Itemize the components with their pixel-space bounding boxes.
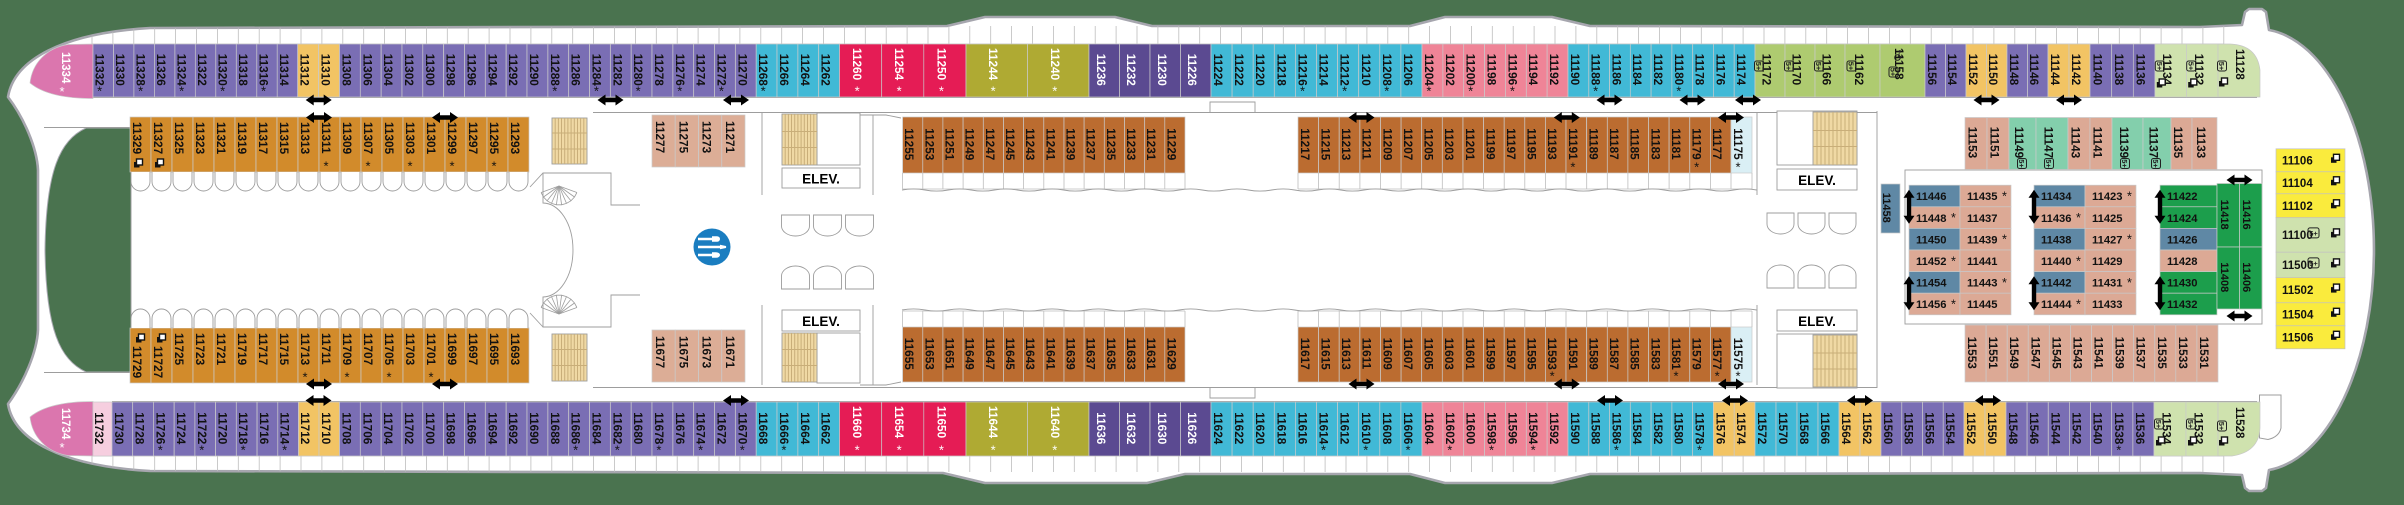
svg-text:11193: 11193 [1545,128,1559,160]
svg-text:11610: 11610 [1359,412,1373,445]
svg-text:11613: 11613 [1339,338,1353,371]
svg-text:*: * [1697,443,1702,458]
svg-text:11437: 11437 [1967,213,1998,225]
svg-text:11630: 11630 [1155,412,1169,445]
svg-text:11544: 11544 [2048,412,2062,445]
svg-text:11536: 11536 [2133,412,2147,445]
svg-text:11728: 11728 [133,412,147,445]
svg-text:11547: 11547 [2028,337,2042,370]
svg-text:5+: 5+ [2044,159,2053,168]
svg-text:11611: 11611 [1360,338,1374,370]
svg-text:*: * [1673,369,1678,384]
svg-text:11197: 11197 [1504,128,1518,160]
svg-text:11579: 11579 [1690,338,1704,371]
svg-text:11298: 11298 [444,54,458,87]
svg-text:5+: 5+ [2154,420,2163,429]
svg-text:11699: 11699 [445,333,459,366]
svg-text:5+: 5+ [2309,259,2318,268]
svg-text:11590: 11590 [1568,412,1582,445]
svg-text:11678: 11678 [652,412,666,445]
svg-text:*: * [897,84,902,99]
svg-text:11697: 11697 [466,333,480,366]
svg-text:11604: 11604 [1422,412,1436,445]
svg-text:11245: 11245 [1003,128,1017,161]
svg-text:11321: 11321 [214,122,228,155]
svg-text:11147: 11147 [2042,127,2056,159]
svg-text:11311: 11311 [319,122,333,154]
svg-text:*: * [179,84,184,99]
svg-text:11606: 11606 [1401,412,1415,445]
svg-text:*: * [1052,84,1057,99]
svg-text:11549: 11549 [2007,337,2021,370]
svg-text:*: * [1321,443,1326,458]
svg-text:11614: 11614 [1317,412,1331,445]
svg-text:11275: 11275 [676,121,690,154]
svg-text:11609: 11609 [1380,338,1394,371]
svg-text:11580: 11580 [1672,412,1686,445]
svg-text:11682: 11682 [610,412,624,445]
svg-text:11324: 11324 [175,54,189,87]
svg-text:11545: 11545 [2049,337,2063,370]
svg-text:11429: 11429 [2092,256,2123,268]
svg-text:11589: 11589 [1587,338,1601,371]
svg-text:*: * [491,159,496,174]
svg-text:11152: 11152 [1966,54,1980,86]
svg-text:11639: 11639 [1064,338,1078,371]
svg-text:11440: 11440 [2041,256,2072,268]
svg-text:*: * [636,84,641,99]
svg-text:*: * [386,370,391,385]
svg-text:11146: 11146 [2027,54,2041,86]
svg-text:11696: 11696 [464,412,478,445]
svg-text:11184: 11184 [1630,54,1644,86]
svg-text:11441: 11441 [1967,256,1998,268]
svg-text:11196: 11196 [1505,54,1519,86]
svg-text:11194: 11194 [1526,54,1540,86]
svg-text:11566: 11566 [1818,412,1832,445]
svg-text:11247: 11247 [983,128,997,161]
svg-text:11673: 11673 [700,336,714,369]
svg-text:11211: 11211 [1360,128,1374,160]
svg-text:11303: 11303 [403,122,417,155]
svg-text:*: * [1951,211,1956,225]
svg-text:11181: 11181 [1669,128,1683,160]
svg-text:11662: 11662 [819,412,833,445]
svg-text:11435: 11435 [1967,191,1998,203]
svg-text:11141: 11141 [2091,127,2105,159]
svg-text:11583: 11583 [1648,338,1662,371]
svg-text:11296: 11296 [464,54,478,87]
svg-text:11213: 11213 [1339,128,1353,161]
svg-text:11550: 11550 [1985,412,1999,445]
svg-text:11586: 11586 [1609,412,1623,445]
svg-text:11192: 11192 [1547,54,1561,86]
svg-text:*: * [365,159,370,174]
svg-text:11608: 11608 [1380,412,1394,445]
svg-text:11624: 11624 [1211,412,1225,445]
svg-text:11666: 11666 [777,412,791,445]
svg-text:11593: 11593 [1545,338,1559,371]
svg-text:*: * [677,84,682,99]
svg-text:11684: 11684 [589,412,603,445]
svg-text:11208: 11208 [1380,54,1394,87]
svg-text:11102: 11102 [2282,201,2313,213]
svg-text:11231: 11231 [1144,128,1158,161]
svg-text:*: * [344,370,349,385]
svg-text:11452: 11452 [1916,256,1947,268]
svg-text:11578: 11578 [1693,412,1707,445]
svg-text:11551: 11551 [1986,337,2000,370]
svg-text:11175: 11175 [1731,128,1745,160]
svg-text:11220: 11220 [1253,54,1267,87]
svg-text:11215: 11215 [1318,128,1332,161]
svg-text:11537: 11537 [2134,337,2148,370]
svg-text:*: * [2076,211,2081,225]
svg-text:11641: 11641 [1043,338,1057,371]
svg-text:11416: 11416 [2240,200,2252,230]
svg-text:11317: 11317 [256,122,270,155]
svg-text:*: * [2076,298,2081,312]
svg-text:11572: 11572 [1755,412,1769,445]
svg-text:11443: 11443 [1967,278,1998,290]
svg-text:11644: 11644 [986,406,1000,439]
svg-text:11149: 11149 [2012,127,2026,159]
svg-text:11207: 11207 [1401,128,1415,161]
svg-text:11456: 11456 [1916,299,1947,311]
svg-text:*: * [781,443,786,458]
svg-text:11725: 11725 [172,333,186,366]
svg-text:*: * [698,443,703,458]
svg-text:11198: 11198 [1485,54,1499,86]
svg-text:11426: 11426 [2167,234,2198,246]
svg-text:5+: 5+ [1754,62,1763,71]
svg-text:11576: 11576 [1713,412,1727,445]
svg-text:11313: 11313 [298,122,312,155]
svg-text:11713: 11713 [298,333,312,366]
svg-text:*: * [2002,233,2007,247]
svg-text:11584: 11584 [1630,412,1644,445]
svg-text:*: * [2127,190,2132,204]
svg-text:*: * [2127,233,2132,247]
svg-text:11293: 11293 [508,122,522,155]
svg-text:11226: 11226 [1185,54,1199,87]
svg-text:11538: 11538 [2112,412,2126,445]
svg-text:11186: 11186 [1609,54,1623,86]
svg-text:11568: 11568 [1797,412,1811,445]
svg-text:11418: 11418 [2218,200,2230,230]
svg-text:*: * [1426,84,1431,99]
svg-text:11570: 11570 [1776,412,1790,445]
svg-text:*: * [1694,160,1699,175]
svg-text:11176: 11176 [1713,54,1727,86]
svg-text:11237: 11237 [1084,128,1098,161]
svg-text:5+: 5+ [2017,159,2026,168]
svg-text:11710: 11710 [319,412,333,445]
svg-text:11629: 11629 [1164,338,1178,371]
svg-text:11326: 11326 [154,54,168,87]
svg-text:11718: 11718 [236,412,250,445]
svg-text:*: * [1489,443,1494,458]
svg-text:11675: 11675 [676,336,690,369]
svg-text:11297: 11297 [466,122,480,155]
svg-text:11553: 11553 [1965,337,1979,370]
svg-text:11446: 11446 [1916,191,1947,203]
svg-text:11454: 11454 [1916,278,1947,290]
svg-text:11632: 11632 [1124,412,1138,445]
svg-text:11250: 11250 [934,48,948,81]
svg-text:11445: 11445 [1967,299,1998,311]
svg-text:11650: 11650 [934,406,948,439]
svg-text:*: * [2127,276,2132,290]
svg-text:11156: 11156 [1925,54,1939,86]
svg-text:11204: 11204 [1422,54,1436,87]
svg-text:11535: 11535 [2155,337,2169,370]
svg-text:11180: 11180 [1672,54,1686,86]
svg-text:*: * [199,443,204,458]
svg-text:11668: 11668 [756,412,770,445]
svg-text:11564: 11564 [1839,412,1853,445]
svg-text:11199: 11199 [1483,128,1497,160]
svg-text:*: * [1052,443,1057,458]
svg-text:11591: 11591 [1566,338,1580,371]
svg-text:11216: 11216 [1296,54,1310,87]
svg-text:11142: 11142 [2069,54,2083,86]
svg-text:11139: 11139 [2117,127,2131,159]
svg-text:11178: 11178 [1693,54,1707,86]
svg-text:11229: 11229 [1164,128,1178,161]
svg-text:11224: 11224 [1211,54,1225,87]
svg-text:11294: 11294 [485,54,499,87]
svg-text:*: * [1363,443,1368,458]
svg-text:5+: 5+ [2151,159,2160,168]
svg-text:*: * [1614,443,1619,458]
svg-text:11615: 11615 [1318,338,1332,371]
svg-text:11148: 11148 [2007,54,2021,86]
svg-text:11541: 11541 [2092,337,2106,370]
svg-text:*: * [220,84,225,99]
svg-text:11251: 11251 [943,128,957,161]
svg-text:11309: 11309 [340,122,354,155]
svg-text:11605: 11605 [1422,338,1436,371]
svg-text:11690: 11690 [527,412,541,445]
svg-text:11318: 11318 [236,54,250,87]
svg-text:11300: 11300 [423,54,437,87]
svg-text:11430: 11430 [2167,278,2198,290]
svg-text:11301: 11301 [424,122,438,155]
svg-text:11143: 11143 [2069,127,2083,159]
svg-text:11729: 11729 [130,346,144,379]
svg-text:11458: 11458 [1880,193,1892,223]
svg-text:*: * [615,443,620,458]
svg-text:11592: 11592 [1547,412,1561,445]
svg-text:11596: 11596 [1505,412,1519,445]
svg-text:11680: 11680 [631,412,645,445]
svg-text:11506: 11506 [2282,332,2313,344]
svg-text:11701: 11701 [424,333,438,366]
svg-text:11651: 11651 [943,338,957,371]
svg-text:11254: 11254 [892,48,906,81]
svg-text:11732: 11732 [92,412,106,445]
svg-text:ELEV.: ELEV. [1798,314,1836,329]
svg-text:11214: 11214 [1317,54,1331,87]
svg-text:11556: 11556 [1922,412,1936,445]
svg-text:11562: 11562 [1860,412,1874,445]
svg-text:11719: 11719 [235,333,249,366]
svg-text:11150: 11150 [1986,54,2000,86]
svg-text:*: * [594,84,599,99]
svg-text:11244: 11244 [986,48,1000,81]
svg-text:11581: 11581 [1669,338,1683,371]
svg-text:*: * [991,443,996,458]
svg-text:*: * [1468,84,1473,99]
svg-text:*: * [1300,84,1305,99]
svg-text:11643: 11643 [1023,338,1037,371]
svg-text:5+: 5+ [2217,422,2226,431]
svg-text:11188: 11188 [1589,54,1603,86]
svg-text:11711: 11711 [319,333,333,365]
svg-text:11218: 11218 [1274,54,1288,87]
svg-text:11280: 11280 [631,54,645,87]
svg-text:11243: 11243 [1023,128,1037,161]
svg-text:11637: 11637 [1084,338,1098,371]
svg-text:11137: 11137 [2147,127,2161,159]
svg-text:11255: 11255 [902,128,916,161]
svg-text:11676: 11676 [673,412,687,445]
svg-text:*: * [740,443,745,458]
svg-text:*: * [1384,84,1389,99]
svg-text:*: * [1570,160,1575,175]
svg-text:11284: 11284 [589,54,603,87]
svg-text:11330: 11330 [113,54,127,87]
svg-text:11617: 11617 [1298,338,1312,371]
svg-text:ELEV.: ELEV. [802,314,840,329]
svg-text:11607: 11607 [1401,338,1415,371]
svg-text:11288: 11288 [548,54,562,87]
svg-text:*: * [2002,190,2007,204]
svg-text:5+: 5+ [2120,159,2129,168]
svg-text:11241: 11241 [1043,128,1057,161]
svg-text:5+: 5+ [1889,68,1898,77]
svg-text:11210: 11210 [1359,54,1373,87]
svg-text:11174: 11174 [1734,54,1748,86]
svg-text:*: * [302,370,307,385]
svg-text:11438: 11438 [2041,234,2072,246]
svg-text:11577: 11577 [1710,338,1724,371]
svg-text:11688: 11688 [548,412,562,445]
svg-text:11154: 11154 [1945,54,1959,86]
svg-text:11306: 11306 [360,54,374,87]
svg-text:11436: 11436 [2041,213,2072,225]
svg-text:11705: 11705 [382,333,396,366]
svg-text:11597: 11597 [1504,338,1518,371]
svg-text:11314: 11314 [277,54,291,87]
svg-text:11546: 11546 [2027,412,2041,445]
svg-text:11282: 11282 [610,54,624,87]
svg-text:11533: 11533 [2176,337,2190,370]
svg-text:11332: 11332 [93,54,107,87]
svg-text:11670: 11670 [735,412,749,445]
svg-text:11274: 11274 [694,54,708,87]
svg-text:11677: 11677 [653,336,667,369]
svg-text:11140: 11140 [2090,54,2104,86]
svg-text:11707: 11707 [361,333,375,366]
svg-text:11189: 11189 [1587,128,1601,160]
svg-text:11295: 11295 [487,122,501,155]
svg-text:*: * [1531,443,1536,458]
svg-text:11554: 11554 [1943,412,1957,445]
svg-text:11334: 11334 [59,52,71,84]
svg-text:11734: 11734 [59,408,71,440]
svg-text:11329: 11329 [130,122,144,155]
svg-text:11408: 11408 [2218,262,2230,292]
svg-text:*: * [991,84,996,99]
svg-text:11240: 11240 [1048,48,1062,81]
svg-text:11106: 11106 [2282,155,2313,167]
svg-text:11722: 11722 [195,412,209,445]
svg-text:11539: 11539 [2113,337,2127,370]
svg-text:11703: 11703 [403,333,417,366]
svg-text:11104: 11104 [2282,178,2313,190]
svg-text:11602: 11602 [1443,412,1457,445]
svg-text:11233: 11233 [1124,128,1138,161]
svg-text:11406: 11406 [2240,262,2252,292]
svg-text:11702: 11702 [402,412,416,445]
svg-text:11432: 11432 [2167,299,2198,311]
svg-text:11299: 11299 [445,122,459,155]
svg-text:11305: 11305 [382,122,396,155]
svg-text:11649: 11649 [963,338,977,371]
svg-text:11599: 11599 [1483,338,1497,371]
svg-text:11674: 11674 [694,412,708,445]
svg-text:11618: 11618 [1274,412,1288,445]
svg-text:11531: 11531 [2197,337,2211,370]
svg-text:11262: 11262 [819,54,833,87]
svg-text:*: * [1676,84,1681,99]
svg-text:11136: 11136 [2134,54,2148,86]
svg-text:11664: 11664 [798,412,812,445]
svg-text:*: * [761,84,766,99]
svg-text:11653: 11653 [922,338,936,371]
svg-text:11672: 11672 [714,412,728,445]
svg-text:11709: 11709 [340,333,354,366]
svg-text:*: * [2002,276,2007,290]
svg-text:11431: 11431 [2092,278,2123,290]
svg-text:11268: 11268 [756,54,770,87]
svg-text:11636: 11636 [1094,412,1108,445]
svg-text:11502: 11502 [2282,285,2313,297]
svg-text:*: * [1510,84,1515,99]
svg-text:*: * [59,440,64,455]
svg-text:11601: 11601 [1463,338,1477,371]
svg-text:11612: 11612 [1338,412,1352,445]
svg-text:*: * [573,443,578,458]
svg-text:11575: 11575 [1731,338,1745,371]
svg-text:11151: 11151 [1988,127,2002,159]
svg-text:11277: 11277 [653,121,667,154]
svg-text:5+: 5+ [1814,62,1823,71]
svg-text:11585: 11585 [1628,338,1642,371]
svg-text:5+: 5+ [1847,62,1856,71]
svg-text:11307: 11307 [361,122,375,155]
svg-text:11308: 11308 [339,54,353,87]
svg-text:*: * [97,84,102,99]
svg-text:*: * [552,84,557,99]
svg-text:11640: 11640 [1048,406,1062,439]
svg-text:11686: 11686 [569,412,583,445]
svg-text:11290: 11290 [527,54,541,87]
svg-text:11706: 11706 [360,412,374,445]
svg-text:*: * [428,370,433,385]
